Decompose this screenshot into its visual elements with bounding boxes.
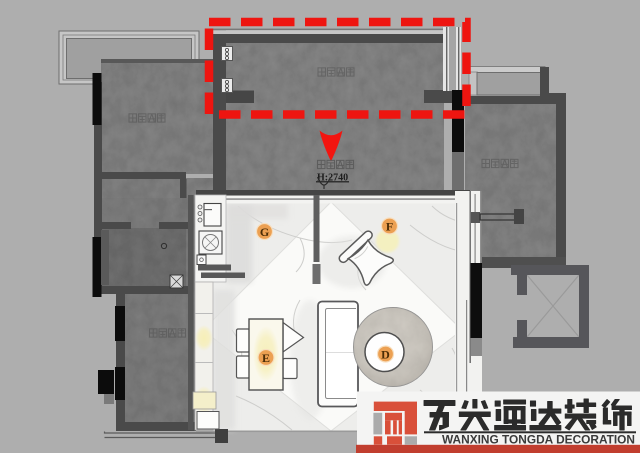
svg-text:D: D [381, 347, 390, 361]
svg-text:E: E [262, 351, 270, 365]
svg-text:F: F [386, 219, 393, 233]
svg-text:WANXING TONGDA DECORATION: WANXING TONGDA DECORATION [442, 433, 635, 447]
svg-text:G: G [260, 225, 269, 239]
